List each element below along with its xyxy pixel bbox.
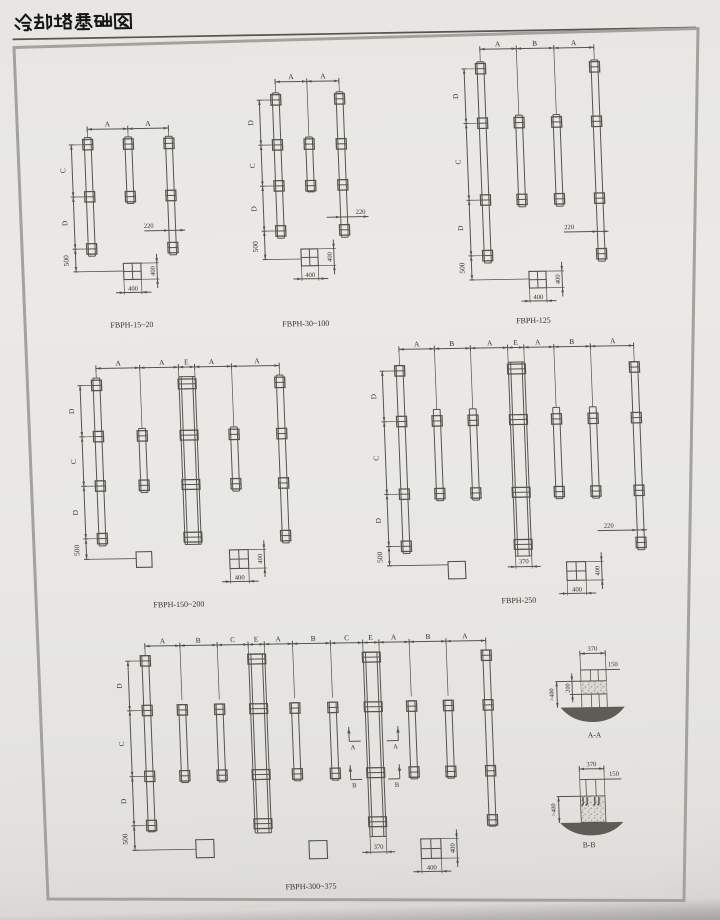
svg-text:A: A — [610, 336, 616, 345]
svg-text:A: A — [393, 744, 398, 751]
svg-text:370: 370 — [587, 646, 598, 653]
svg-text:500: 500 — [375, 551, 384, 563]
svg-text:A-A: A-A — [588, 730, 602, 739]
svg-text:FBPH-15~20: FBPH-15~20 — [110, 320, 153, 330]
svg-text:400: 400 — [533, 294, 544, 301]
svg-text:370: 370 — [374, 844, 385, 851]
svg-text:400: 400 — [427, 864, 438, 871]
svg-text:220: 220 — [356, 209, 367, 216]
svg-text:500: 500 — [457, 262, 466, 274]
svg-text:C: C — [344, 633, 349, 642]
svg-text:C: C — [453, 159, 462, 164]
svg-text:D: D — [67, 408, 76, 414]
svg-text:A: A — [487, 338, 493, 347]
svg-text:E: E — [184, 357, 189, 366]
svg-text:400: 400 — [572, 586, 583, 593]
svg-text:500: 500 — [120, 833, 129, 845]
svg-text:C: C — [230, 635, 235, 644]
svg-text:B: B — [449, 339, 454, 348]
svg-text:B-B: B-B — [583, 840, 596, 849]
svg-text:C: C — [248, 163, 257, 168]
svg-text:400: 400 — [128, 286, 139, 293]
svg-text:400: 400 — [594, 565, 601, 576]
svg-text:A: A — [115, 358, 121, 367]
svg-text:FBPH-300~375: FBPH-300~375 — [285, 882, 336, 892]
svg-text:500: 500 — [72, 545, 81, 557]
svg-text:A: A — [275, 634, 281, 643]
svg-text:D: D — [71, 509, 80, 515]
svg-text:D: D — [60, 220, 69, 226]
svg-text:>400: >400 — [548, 688, 555, 701]
svg-text:FBPH-30~100: FBPH-30~100 — [282, 319, 329, 329]
svg-text:E: E — [513, 338, 518, 347]
svg-text:500: 500 — [251, 241, 260, 253]
svg-text:D: D — [456, 225, 465, 231]
svg-text:A: A — [535, 337, 541, 346]
svg-text:A: A — [414, 339, 420, 348]
svg-text:D: D — [249, 205, 258, 211]
svg-text:D: D — [374, 517, 383, 523]
svg-text:C: C — [58, 168, 67, 173]
svg-text:A: A — [160, 636, 166, 645]
svg-text:A: A — [159, 358, 165, 367]
svg-text:D: D — [119, 798, 128, 804]
svg-text:E: E — [254, 635, 259, 644]
svg-text:B: B — [195, 636, 200, 645]
svg-text:C: C — [117, 741, 126, 746]
svg-text:B: B — [425, 632, 430, 641]
svg-text:B: B — [569, 337, 574, 346]
svg-text:150: 150 — [608, 661, 619, 668]
svg-text:220: 220 — [564, 224, 575, 231]
svg-text:C: C — [69, 459, 78, 464]
svg-text:200: 200 — [565, 683, 572, 692]
svg-text:400: 400 — [150, 265, 157, 276]
svg-text:220: 220 — [144, 223, 155, 230]
svg-text:FBPH-150~200: FBPH-150~200 — [153, 600, 204, 610]
svg-text:A: A — [254, 356, 260, 365]
svg-text:D: D — [115, 683, 124, 689]
svg-text:400: 400 — [327, 251, 334, 262]
svg-text:A: A — [350, 744, 355, 751]
svg-text:150: 150 — [609, 771, 620, 778]
svg-text:A: A — [571, 38, 577, 47]
svg-text:B: B — [310, 634, 315, 643]
svg-text:E: E — [368, 633, 373, 642]
svg-text:400: 400 — [555, 274, 562, 285]
svg-text:FBPH-125: FBPH-125 — [516, 316, 551, 326]
svg-text:D: D — [246, 119, 255, 125]
svg-text:400: 400 — [305, 272, 316, 279]
svg-text:A: A — [462, 631, 468, 640]
svg-text:A: A — [288, 72, 294, 81]
svg-text:400: 400 — [235, 574, 246, 581]
svg-text:370: 370 — [519, 558, 530, 565]
svg-text:400: 400 — [257, 553, 264, 564]
svg-text:400: 400 — [450, 843, 457, 854]
svg-text:A: A — [145, 119, 151, 128]
svg-text:A: A — [495, 39, 501, 48]
svg-text:>400: >400 — [550, 803, 557, 816]
svg-text:A: A — [209, 357, 215, 366]
svg-text:D: D — [451, 93, 460, 99]
svg-text:B: B — [532, 39, 537, 48]
svg-text:A: A — [104, 119, 110, 128]
svg-text:C: C — [371, 456, 380, 461]
svg-text:220: 220 — [604, 523, 615, 530]
svg-text:B: B — [395, 782, 400, 789]
svg-text:FBPH-250: FBPH-250 — [501, 596, 536, 606]
svg-text:A: A — [320, 71, 326, 80]
svg-text:D: D — [369, 393, 378, 399]
svg-text:370: 370 — [586, 761, 597, 768]
svg-text:A: A — [391, 632, 397, 641]
svg-text:500: 500 — [61, 255, 70, 267]
svg-text:B: B — [352, 782, 357, 789]
